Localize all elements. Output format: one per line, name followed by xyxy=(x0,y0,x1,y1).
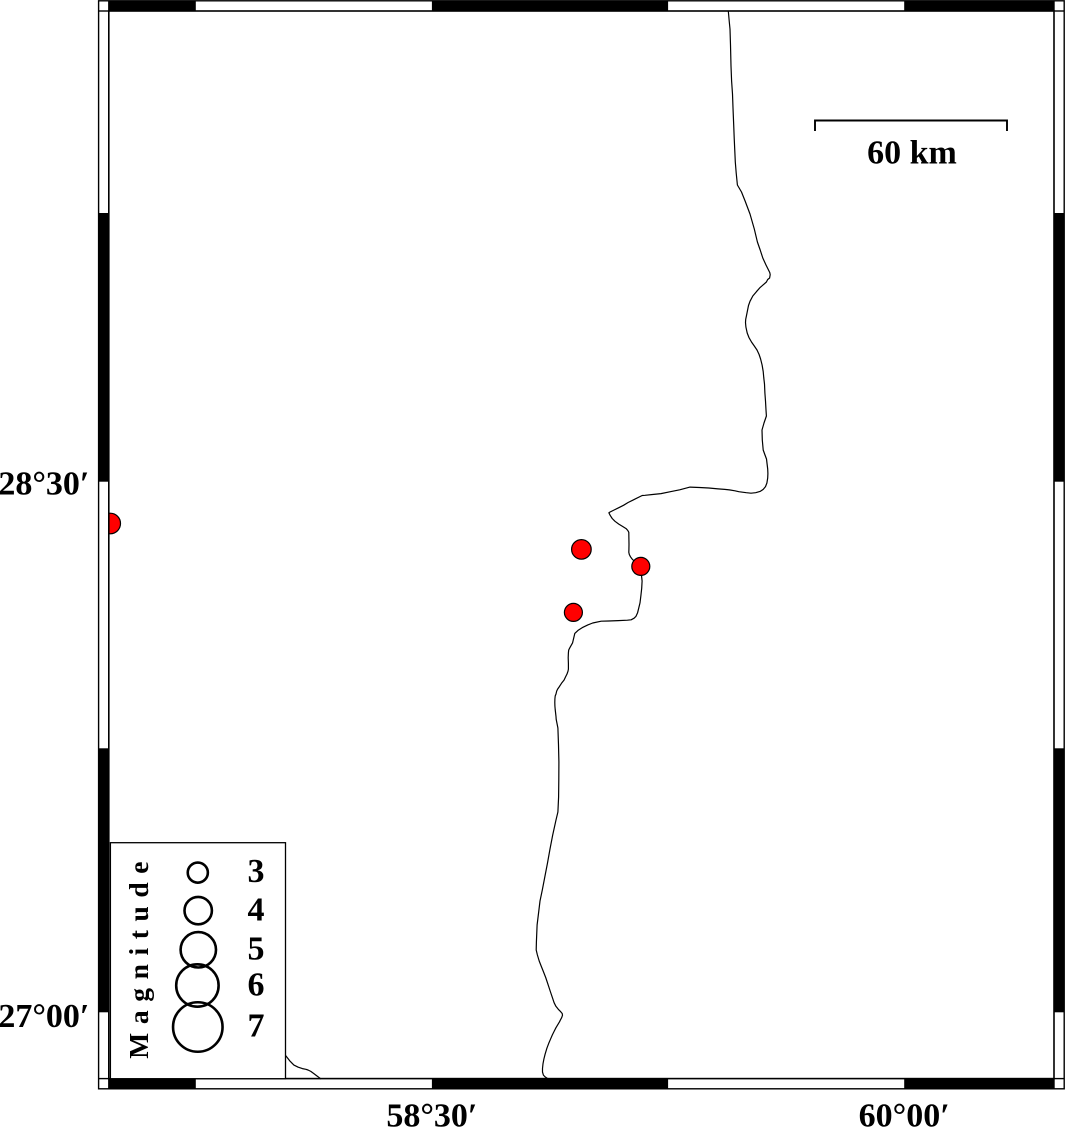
svg-text:58°30′: 58°30′ xyxy=(386,1098,477,1128)
svg-text:6: 6 xyxy=(248,967,265,1004)
svg-text:5: 5 xyxy=(248,931,265,968)
svg-text:Magnitude: Magnitude xyxy=(123,853,154,1059)
svg-text:7: 7 xyxy=(248,1007,265,1044)
svg-text:60°00′: 60°00′ xyxy=(859,1098,950,1128)
svg-text:60 km: 60 km xyxy=(867,135,957,172)
svg-text:27°00′: 27°00′ xyxy=(0,998,90,1035)
svg-text:28°30′: 28°30′ xyxy=(0,466,90,503)
svg-text:3: 3 xyxy=(248,853,265,890)
svg-text:4: 4 xyxy=(248,891,265,928)
